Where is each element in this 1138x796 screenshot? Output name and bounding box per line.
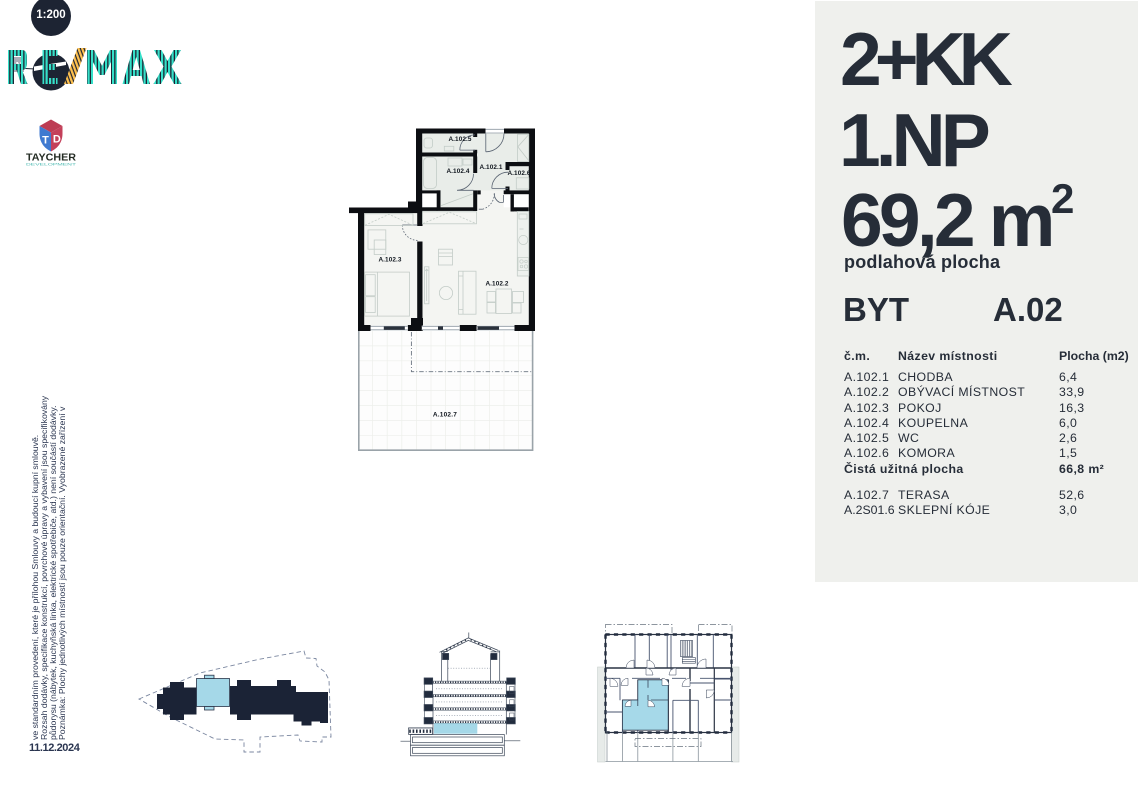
svg-text:A.102.5: A.102.5 (448, 136, 471, 143)
svg-text:A.102.7: A.102.7 (433, 412, 457, 419)
svg-text:A.102.6: A.102.6 (507, 170, 530, 177)
svg-text:DEVELOPMENT: DEVELOPMENT (26, 162, 77, 167)
svg-text:A.102.2: A.102.2 (485, 281, 508, 288)
svg-text:D: D (53, 134, 61, 146)
svg-text:T: T (42, 135, 49, 147)
svg-text:A.102.1: A.102.1 (479, 164, 502, 171)
svg-text:A.102.3: A.102.3 (378, 257, 401, 264)
svg-text:A.102.4: A.102.4 (446, 168, 469, 175)
